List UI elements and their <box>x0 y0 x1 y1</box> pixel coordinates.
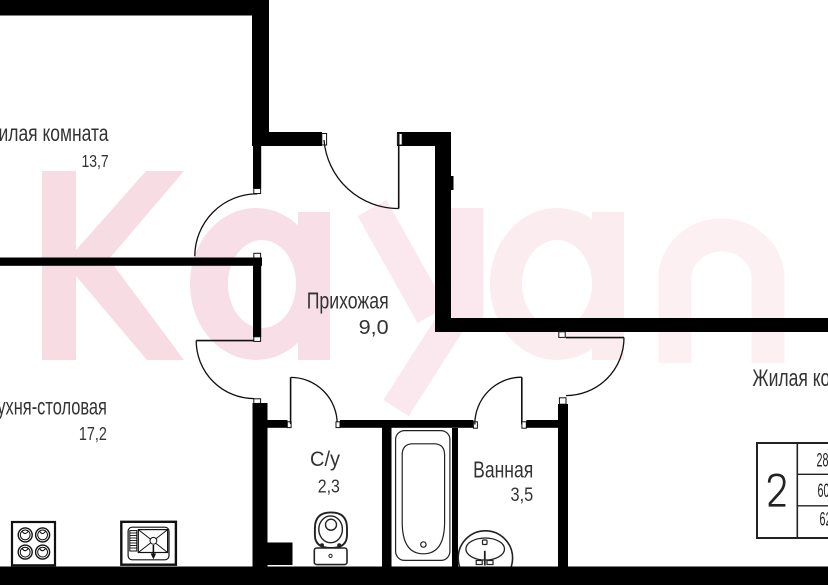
svg-text:Кухня-столовая: Кухня-столовая <box>0 395 107 420</box>
svg-text:Прихожая: Прихожая <box>307 289 389 314</box>
svg-text:Ванная: Ванная <box>473 457 533 483</box>
svg-text:62: 62 <box>820 509 828 530</box>
svg-text:60: 60 <box>818 481 828 502</box>
svg-text:2,3: 2,3 <box>318 475 340 497</box>
svg-text:28: 28 <box>817 450 828 471</box>
svg-text:9,0: 9,0 <box>359 317 389 339</box>
svg-text:13,7: 13,7 <box>82 151 109 171</box>
svg-text:17,2: 17,2 <box>79 423 107 444</box>
svg-text:3,5: 3,5 <box>511 484 534 506</box>
svg-text:С/у: С/у <box>310 448 341 472</box>
svg-text:Жилая комната: Жилая комната <box>752 366 828 392</box>
svg-text:Жилая комната: Жилая комната <box>0 121 109 147</box>
